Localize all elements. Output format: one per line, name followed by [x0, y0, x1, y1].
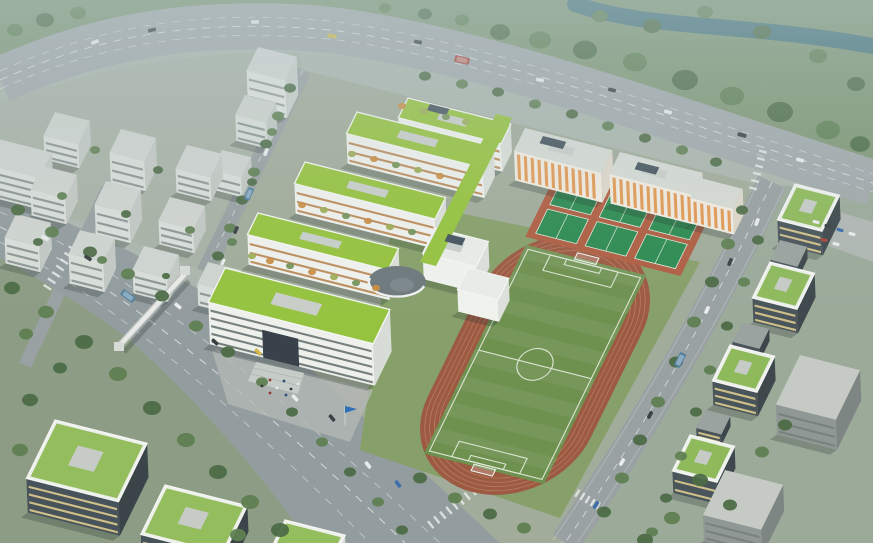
distance-haze-overlay	[0, 0, 873, 543]
school-campus-aerial-rendering	[0, 0, 873, 543]
aerial-rendering-stage	[0, 0, 873, 543]
